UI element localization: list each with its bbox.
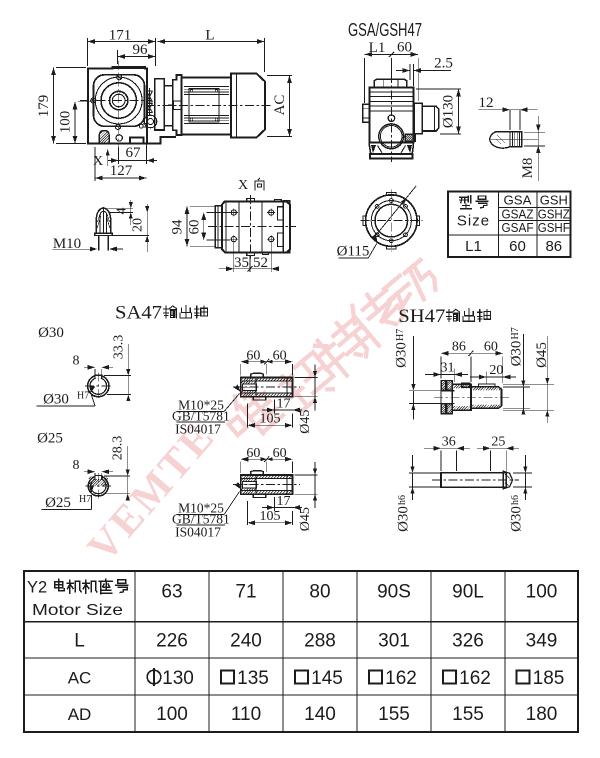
svg-text:349: 349 [526, 631, 558, 652]
svg-text:90L: 90L [452, 582, 484, 603]
svg-text:60: 60 [273, 349, 287, 364]
svg-text:28.3: 28.3 [111, 436, 126, 461]
svg-text:h6: h6 [510, 495, 521, 505]
svg-text:4: 4 [114, 208, 129, 215]
svg-text:2.5: 2.5 [434, 56, 453, 72]
svg-text:IS04017: IS04017 [175, 421, 221, 436]
svg-text:60: 60 [273, 446, 287, 461]
svg-text:288: 288 [304, 631, 336, 652]
svg-text:Y2: Y2 [27, 579, 47, 597]
svg-text:GSH: GSH [540, 193, 568, 208]
svg-text:96: 96 [133, 42, 149, 58]
svg-text:35: 35 [234, 255, 249, 271]
svg-text:105: 105 [260, 509, 281, 524]
svg-text:SH47: SH47 [398, 306, 445, 327]
svg-text:94: 94 [170, 219, 186, 235]
svg-text:110: 110 [231, 704, 261, 725]
svg-text:8: 8 [73, 354, 80, 369]
svg-text:80: 80 [309, 582, 330, 603]
svg-text:Size: Size [457, 213, 490, 230]
svg-text:L: L [74, 631, 85, 652]
svg-text:17: 17 [277, 397, 291, 412]
svg-text:52: 52 [253, 255, 268, 271]
svg-text:h6: h6 [397, 495, 408, 505]
svg-text:135: 135 [237, 668, 269, 689]
svg-text:L1: L1 [465, 238, 482, 255]
svg-text:H7: H7 [77, 391, 89, 402]
svg-text:326: 326 [452, 631, 484, 652]
svg-text:180: 180 [526, 704, 558, 725]
svg-text:162: 162 [385, 668, 417, 689]
svg-text:IS04017: IS04017 [175, 524, 221, 539]
svg-text:8: 8 [73, 458, 80, 473]
svg-text:GSAF: GSAF [502, 220, 534, 235]
svg-text:GSA/GSH47: GSA/GSH47 [348, 19, 422, 40]
svg-text:Ø45: Ø45 [298, 507, 313, 531]
svg-text:Ø25: Ø25 [45, 495, 71, 511]
svg-text:Motor Size: Motor Size [32, 602, 123, 619]
svg-text:Ø30: Ø30 [394, 342, 410, 368]
svg-text:155: 155 [452, 704, 484, 725]
svg-text:Ø30: Ø30 [43, 392, 69, 408]
svg-text:60: 60 [246, 349, 260, 364]
svg-text:L1: L1 [369, 40, 386, 56]
svg-text:240: 240 [230, 631, 262, 652]
svg-text:Ø25: Ø25 [37, 431, 63, 447]
svg-text:71: 71 [235, 582, 256, 603]
svg-text:AD: AD [68, 705, 92, 724]
svg-text:GSA: GSA [504, 193, 532, 208]
svg-text:25: 25 [491, 435, 505, 450]
svg-text:AC: AC [68, 669, 92, 688]
svg-text:31: 31 [441, 361, 455, 376]
svg-text:60: 60 [484, 340, 498, 355]
svg-text:60: 60 [246, 446, 260, 461]
svg-text:100: 100 [526, 582, 558, 603]
svg-text:127: 127 [110, 163, 133, 179]
svg-text:Ø30: Ø30 [396, 506, 412, 532]
svg-text:X: X [238, 178, 248, 193]
svg-text:H7: H7 [79, 494, 91, 505]
svg-text:Ø30: Ø30 [38, 325, 64, 341]
svg-text:20: 20 [131, 218, 146, 232]
svg-text:100: 100 [156, 704, 188, 725]
svg-text:SA47: SA47 [115, 303, 162, 324]
svg-text:130: 130 [162, 668, 194, 689]
svg-text:100: 100 [58, 111, 74, 134]
svg-text:H7: H7 [510, 327, 521, 339]
svg-text:67: 67 [126, 145, 142, 161]
svg-text:86: 86 [545, 238, 562, 255]
svg-text:301: 301 [378, 631, 410, 652]
svg-text:Ø115: Ø115 [337, 244, 370, 260]
svg-text:X: X [93, 154, 103, 169]
svg-text:86: 86 [452, 340, 466, 355]
svg-text:162: 162 [459, 668, 491, 689]
svg-text:L: L [205, 28, 214, 44]
svg-text:12: 12 [479, 95, 494, 111]
svg-text:Ø30: Ø30 [509, 341, 525, 367]
svg-text:171: 171 [109, 28, 132, 44]
svg-text:AC: AC [272, 95, 288, 116]
svg-text:179: 179 [36, 95, 52, 118]
svg-text:20: 20 [489, 363, 503, 378]
svg-text:140: 140 [304, 704, 336, 725]
svg-text:63: 63 [161, 582, 182, 603]
svg-text:60: 60 [187, 220, 203, 235]
svg-text:36: 36 [442, 435, 456, 450]
svg-text:60: 60 [509, 238, 526, 255]
svg-text:Ø130: Ø130 [441, 95, 457, 128]
svg-text:17: 17 [277, 494, 291, 509]
svg-text:90S: 90S [377, 582, 411, 603]
svg-text:H7: H7 [395, 329, 406, 341]
svg-text:185: 185 [533, 668, 565, 689]
svg-text:Ø30: Ø30 [508, 506, 524, 532]
svg-text:33.3: 33.3 [111, 335, 126, 360]
svg-text:Ø45: Ø45 [298, 410, 313, 434]
svg-text:226: 226 [156, 631, 188, 652]
svg-text:GSHF: GSHF [538, 220, 570, 235]
svg-text:105: 105 [260, 412, 281, 427]
svg-text:145: 145 [311, 668, 343, 689]
svg-text:155: 155 [378, 704, 410, 725]
svg-text:60: 60 [397, 40, 412, 56]
svg-text:M8: M8 [520, 158, 536, 179]
